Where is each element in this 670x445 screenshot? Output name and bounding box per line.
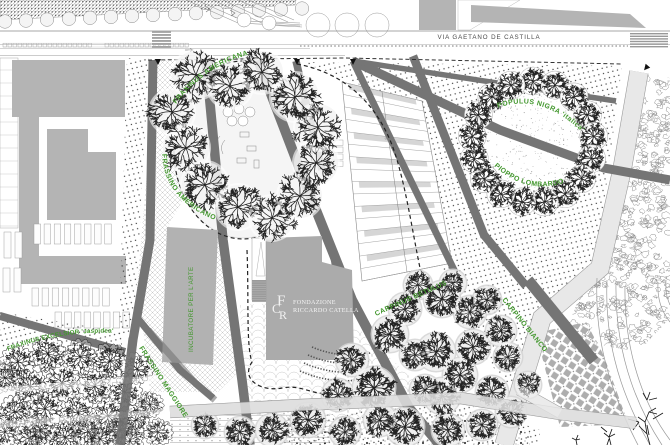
svg-text:INCUBATORE PER L'ARTE: INCUBATORE PER L'ARTE: [188, 266, 195, 352]
svg-text:VIA GAETANO DE CASTILLA: VIA GAETANO DE CASTILLA: [437, 34, 540, 41]
svg-text:7b: 7b: [450, 412, 454, 416]
svg-text:FONDAZIONE: FONDAZIONE: [293, 299, 336, 306]
svg-text:RICCARDO CATELLA: RICCARDO CATELLA: [293, 307, 359, 314]
svg-text:1a: 1a: [240, 67, 244, 71]
svg-text:R: R: [279, 308, 287, 322]
